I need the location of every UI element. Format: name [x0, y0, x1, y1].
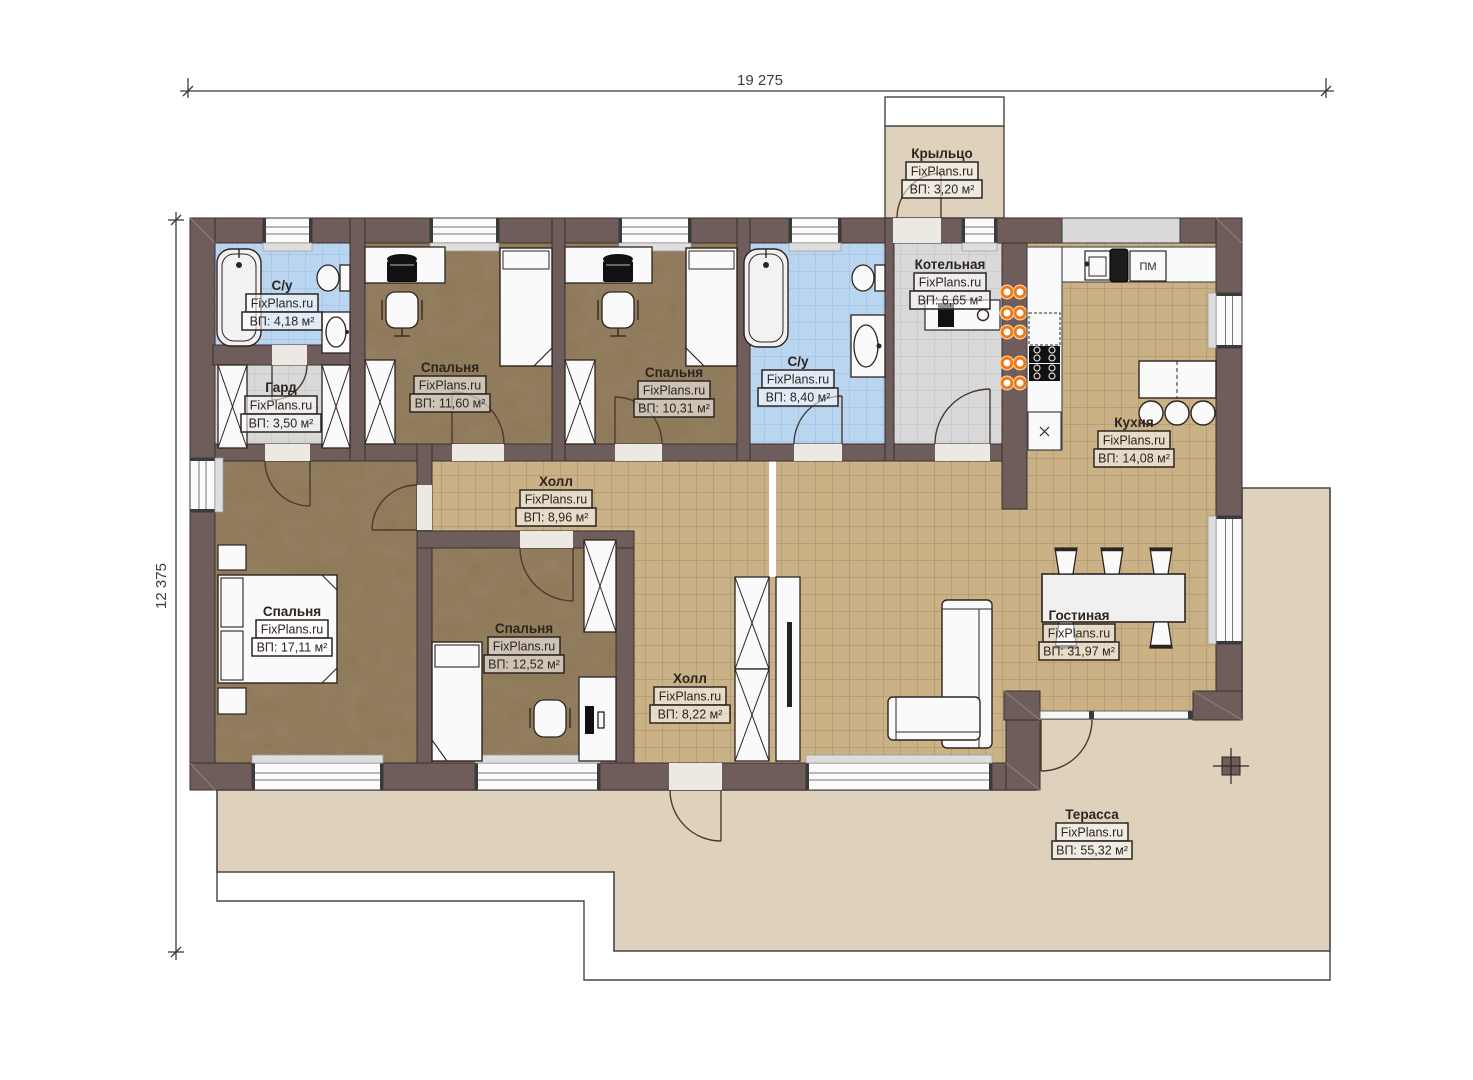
svg-text:Спальня: Спальня	[421, 360, 479, 375]
svg-text:Спальня: Спальня	[263, 604, 321, 619]
svg-text:FixPlans.ru: FixPlans.ru	[419, 379, 482, 393]
svg-text:FixPlans.ru: FixPlans.ru	[767, 373, 830, 387]
svg-text:С/у: С/у	[271, 278, 293, 293]
svg-text:ВП: 8,22 м²: ВП: 8,22 м²	[658, 708, 723, 722]
svg-text:Котельная: Котельная	[915, 257, 986, 272]
svg-text:Терасса: Терасса	[1065, 807, 1119, 822]
svg-text:FixPlans.ru: FixPlans.ru	[1048, 627, 1111, 641]
svg-text:FixPlans.ru: FixPlans.ru	[261, 623, 324, 637]
svg-text:ВП: 14,08 м²: ВП: 14,08 м²	[1098, 452, 1170, 466]
svg-text:FixPlans.ru: FixPlans.ru	[911, 165, 974, 179]
svg-text:ВП: 11,60 м²: ВП: 11,60 м²	[415, 397, 486, 411]
svg-text:FixPlans.ru: FixPlans.ru	[659, 690, 722, 704]
svg-text:Гостиная: Гостиная	[1048, 608, 1109, 623]
svg-text:FixPlans.ru: FixPlans.ru	[1103, 434, 1166, 448]
svg-text:ВП: 6,65 м²: ВП: 6,65 м²	[918, 294, 983, 308]
svg-text:FixPlans.ru: FixPlans.ru	[525, 493, 588, 507]
svg-text:ВП: 3,50 м²: ВП: 3,50 м²	[249, 417, 314, 431]
svg-text:Спальня: Спальня	[495, 621, 553, 636]
svg-text:ВП: 55,32 м²: ВП: 55,32 м²	[1056, 844, 1128, 858]
svg-text:Гард: Гард	[265, 380, 297, 395]
svg-text:FixPlans.ru: FixPlans.ru	[643, 384, 706, 398]
svg-text:FixPlans.ru: FixPlans.ru	[1061, 826, 1124, 840]
svg-text:Кухня: Кухня	[1114, 415, 1153, 430]
svg-text:ВП: 31,97 м²: ВП: 31,97 м²	[1043, 645, 1115, 659]
svg-text:FixPlans.ru: FixPlans.ru	[493, 640, 556, 654]
svg-text:ВП: 8,40 м²: ВП: 8,40 м²	[766, 391, 831, 405]
svg-text:ВП: 10,31 м²: ВП: 10,31 м²	[638, 402, 710, 416]
svg-text:Спальня: Спальня	[645, 365, 703, 380]
svg-text:19 275: 19 275	[737, 72, 783, 89]
svg-text:ВП: 4,18 м²: ВП: 4,18 м²	[250, 315, 315, 329]
svg-text:ВП: 3,20 м²: ВП: 3,20 м²	[910, 183, 975, 197]
svg-text:ВП: 12,52 м²: ВП: 12,52 м²	[488, 658, 560, 672]
svg-text:ВП: 17,11 м²: ВП: 17,11 м²	[257, 641, 328, 655]
svg-text:FixPlans.ru: FixPlans.ru	[250, 399, 313, 413]
svg-text:Крыльцо: Крыльцо	[911, 146, 972, 161]
svg-text:С/у: С/у	[787, 354, 809, 369]
svg-text:FixPlans.ru: FixPlans.ru	[919, 276, 982, 290]
svg-text:Холл: Холл	[539, 474, 573, 489]
svg-text:FixPlans.ru: FixPlans.ru	[251, 297, 314, 311]
svg-text:ВП: 8,96 м²: ВП: 8,96 м²	[524, 511, 589, 525]
svg-text:ПМ: ПМ	[1139, 261, 1156, 273]
svg-text:Холл: Холл	[673, 671, 707, 686]
svg-text:12 375: 12 375	[153, 563, 170, 609]
